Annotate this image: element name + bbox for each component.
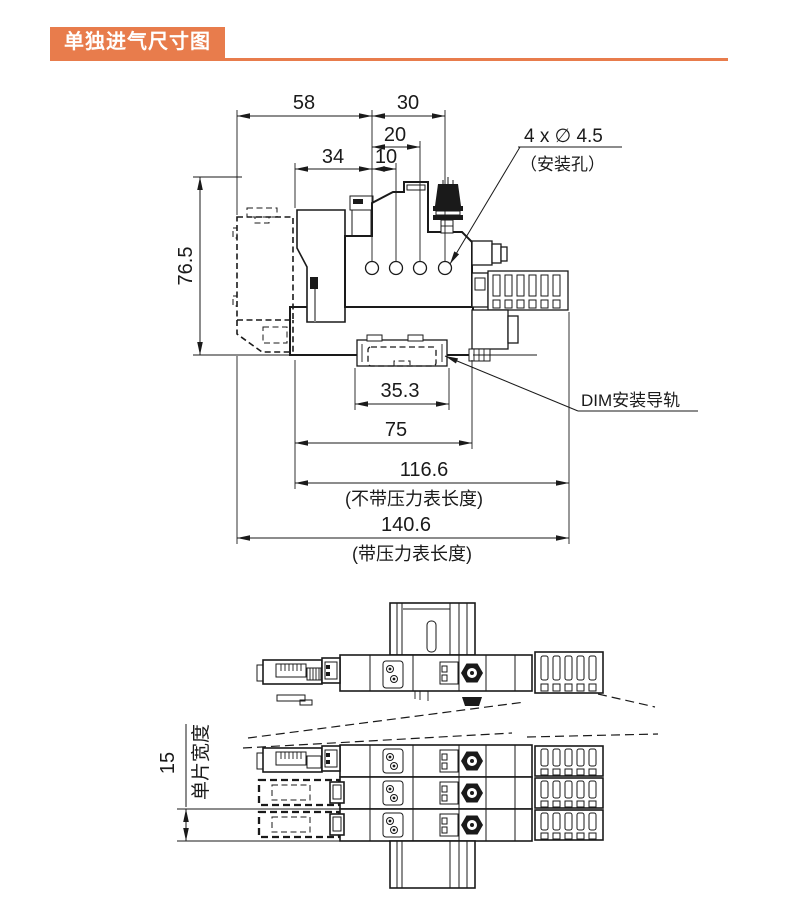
top-view-drawing: 15 单片宽度 xyxy=(157,603,658,888)
din-rail-clip xyxy=(357,335,447,366)
note-without-gauge: (不带压力表长度) xyxy=(345,489,483,509)
dim-58-label: 58 xyxy=(293,92,315,114)
slice-width-label: 单片宽度 xyxy=(190,724,212,800)
dim-35-3-label: 35.3 xyxy=(381,380,420,402)
din-rail-top xyxy=(390,603,475,655)
page: 单独进气尺寸图 xyxy=(0,0,800,910)
dim-75-label: 75 xyxy=(385,419,407,441)
dim-30-label: 30 xyxy=(397,92,419,114)
mounting-hole-3 xyxy=(414,262,427,275)
mounting-hole-4 xyxy=(439,262,452,275)
barb-fitting xyxy=(472,271,568,310)
push-in-fitting-lower xyxy=(469,310,518,361)
dimension-drawing: 58 30 20 34 10 76.5 35.3 75 116.6 (不带压力表… xyxy=(0,0,800,910)
mounting-holes-spec: 4 x ∅ 4.5 xyxy=(524,126,603,147)
din-rail-bottom xyxy=(390,841,475,888)
manifold-slice-row-3 xyxy=(259,809,603,841)
pressure-gauge-dashed xyxy=(233,208,293,352)
manifold-slice-row-2 xyxy=(259,777,603,809)
muffler xyxy=(433,177,463,233)
dim-116-6-label: 116.6 xyxy=(400,459,449,481)
din-rail-callout: DIM安装导轨 xyxy=(445,356,698,411)
mounting-holes-name: （安装孔） xyxy=(520,155,605,174)
manifold-slice-row-1 xyxy=(257,745,603,777)
dim-15-label: 15 xyxy=(157,752,179,774)
break-lines xyxy=(243,694,658,748)
dim-10-label: 10 xyxy=(375,146,397,168)
dim-20-label: 20 xyxy=(384,124,406,146)
slice-width-dimension: 15 单片宽度 xyxy=(157,724,340,841)
mounting-hole-2 xyxy=(390,262,403,275)
dim-140-6-label: 140.6 xyxy=(381,514,431,536)
manifold-slice-single xyxy=(257,652,603,706)
mounting-hole-1 xyxy=(366,262,379,275)
side-view-drawing: 58 30 20 34 10 76.5 35.3 75 116.6 (不带压力表… xyxy=(175,92,698,564)
dim-76-5-label: 76.5 xyxy=(175,247,197,286)
dim-34-label: 34 xyxy=(322,146,344,168)
push-in-fitting-upper xyxy=(472,241,507,265)
din-rail-label: DIM安装导轨 xyxy=(581,391,680,410)
note-with-gauge: (带压力表长度) xyxy=(352,544,472,564)
